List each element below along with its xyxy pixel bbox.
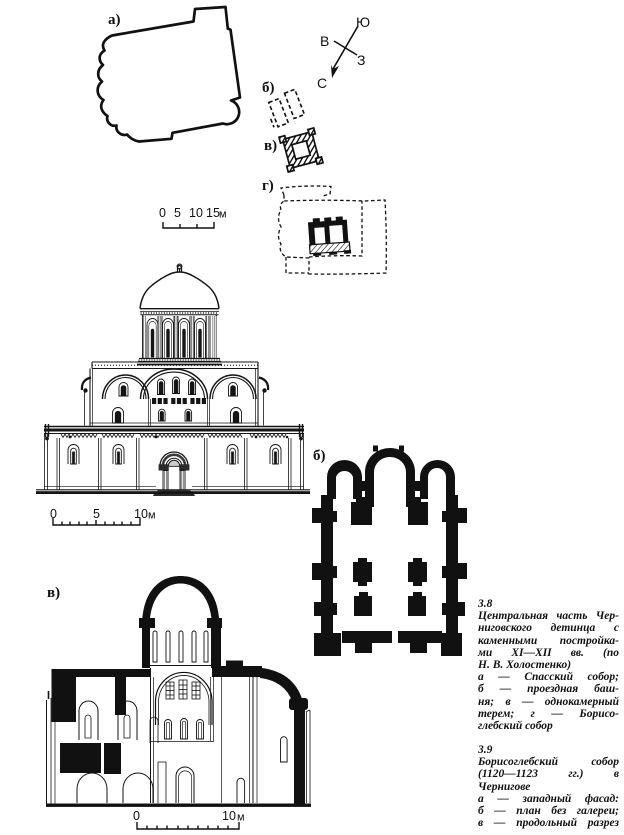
svg-text:в): в) bbox=[47, 585, 60, 601]
svg-text:б): б) bbox=[313, 448, 326, 464]
svg-text:а): а) bbox=[108, 12, 121, 28]
svg-text:б): б) bbox=[262, 80, 275, 96]
svg-text:5: 5 bbox=[174, 206, 181, 220]
svg-text:г): г) bbox=[262, 178, 274, 194]
svg-text:0: 0 bbox=[133, 809, 140, 823]
svg-text:м: м bbox=[219, 209, 227, 221]
svg-text:Ю: Ю bbox=[356, 14, 370, 30]
svg-text:З: З bbox=[357, 52, 365, 68]
svg-text:0: 0 bbox=[159, 206, 166, 220]
svg-text:10: 10 bbox=[134, 507, 148, 521]
svg-text:15: 15 bbox=[206, 206, 220, 220]
svg-text:В: В bbox=[320, 33, 329, 49]
svg-text:5: 5 bbox=[93, 507, 100, 521]
svg-text:10: 10 bbox=[189, 206, 203, 220]
svg-text:С: С bbox=[317, 75, 327, 91]
svg-text:0: 0 bbox=[50, 507, 57, 521]
svg-text:м: м bbox=[237, 812, 245, 824]
svg-text:м: м bbox=[148, 510, 156, 522]
svg-text:10: 10 bbox=[222, 809, 236, 823]
svg-text:в): в) bbox=[264, 138, 277, 154]
